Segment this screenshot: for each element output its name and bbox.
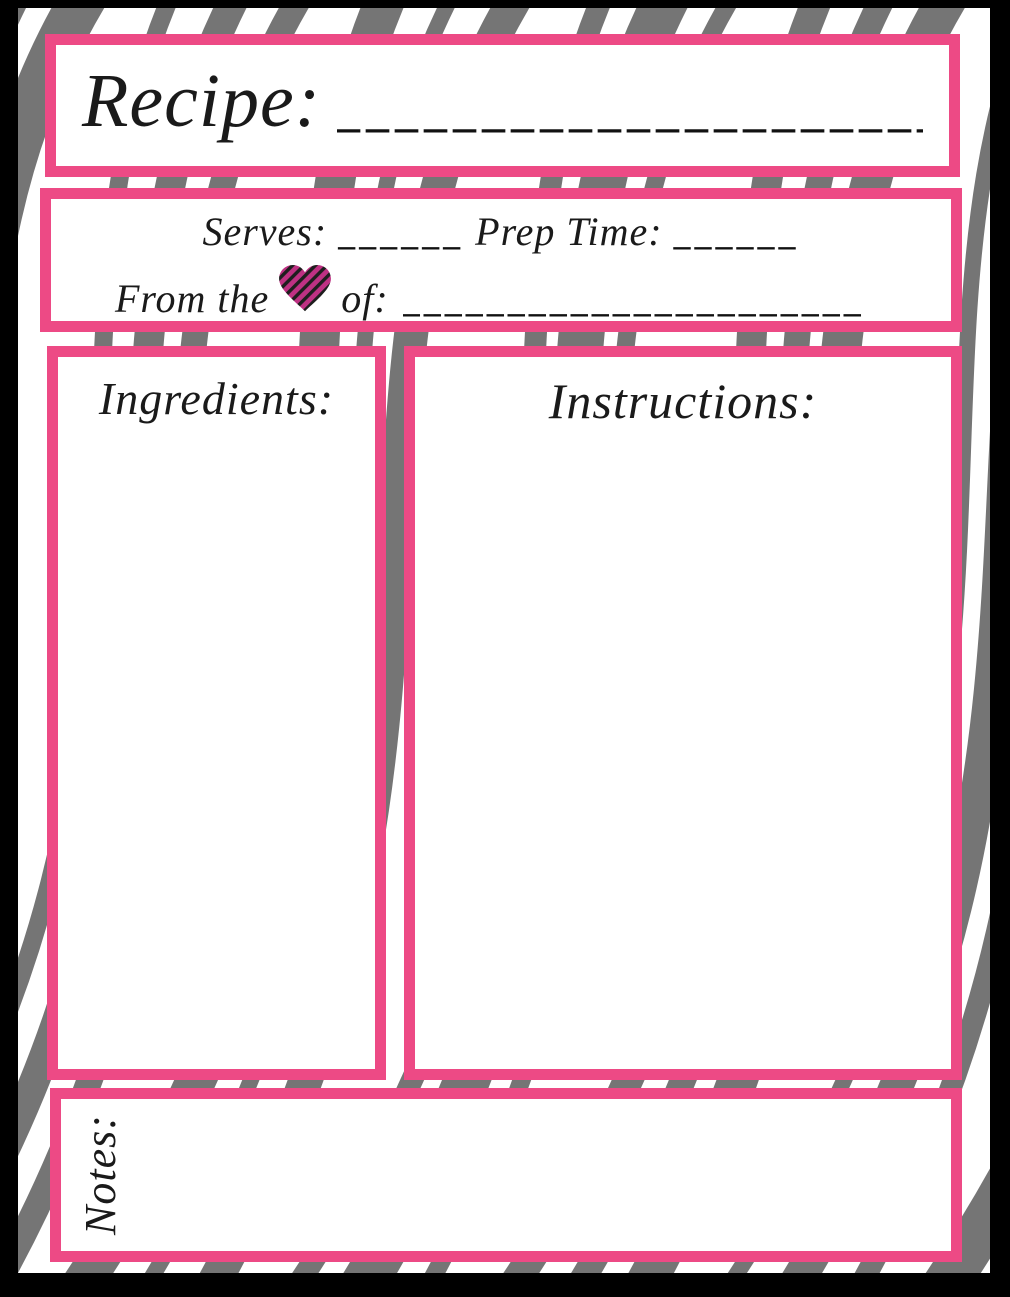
of-label: of: bbox=[341, 273, 388, 325]
recipe-card-page: Recipe: ______________________ Serves: _… bbox=[0, 0, 1010, 1297]
from-blank: ______________________________ bbox=[403, 280, 863, 324]
recipe-title-label: Recipe: bbox=[82, 60, 321, 144]
instructions-heading: Instructions: bbox=[549, 371, 818, 431]
notes-panel: Notes: bbox=[50, 1088, 962, 1262]
recipe-title-box: Recipe: ______________________ bbox=[45, 34, 960, 177]
notes-content-area bbox=[126, 1099, 951, 1251]
serves-prep-line: Serves: ______ Prep Time: ______ bbox=[51, 205, 951, 259]
ingredients-panel: Ingredients: bbox=[47, 346, 386, 1080]
ingredients-heading: Ingredients: bbox=[99, 371, 334, 426]
info-box: Serves: ______ Prep Time: ______ From th… bbox=[40, 188, 962, 332]
from-the-label: From the bbox=[115, 273, 269, 325]
recipe-title-blank: ______________________ bbox=[337, 84, 923, 137]
prep-time-blank: ______ bbox=[674, 216, 800, 253]
instructions-panel: Instructions: bbox=[404, 346, 962, 1080]
notes-heading: Notes: bbox=[75, 1099, 126, 1251]
serves-blank: ______ bbox=[338, 216, 464, 253]
prep-time-label: Prep Time: bbox=[475, 209, 662, 254]
from-the-heart-line: From the of: ___________________________… bbox=[51, 259, 951, 325]
serves-label: Serves: bbox=[202, 209, 327, 254]
heart-icon bbox=[279, 265, 331, 312]
